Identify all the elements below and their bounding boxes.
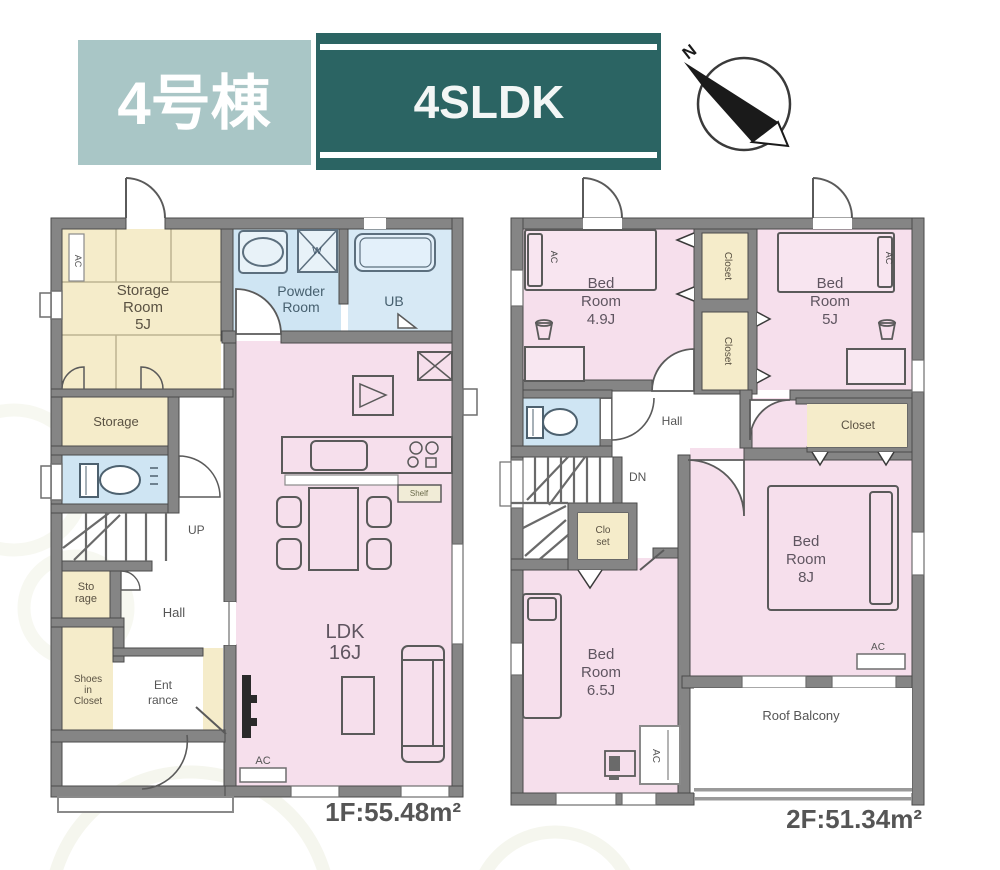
svg-text:Shelf: Shelf <box>410 489 429 498</box>
svg-text:rance: rance <box>148 693 178 707</box>
svg-text:AC: AC <box>650 749 661 763</box>
svg-text:Sto: Sto <box>78 581 95 593</box>
svg-text:AC: AC <box>73 255 83 268</box>
svg-text:AC: AC <box>884 252 894 265</box>
svg-text:6.5J: 6.5J <box>587 682 615 699</box>
svg-text:AC: AC <box>871 642 885 653</box>
svg-text:rage: rage <box>75 593 97 605</box>
svg-text:Room: Room <box>123 299 163 316</box>
svg-text:Room: Room <box>581 664 621 681</box>
svg-text:Closet: Closet <box>722 337 733 366</box>
svg-text:Room: Room <box>581 293 621 310</box>
svg-text:2F:51.34m²: 2F:51.34m² <box>786 804 922 834</box>
svg-text:Storage: Storage <box>117 282 170 299</box>
svg-text:8J: 8J <box>798 569 814 586</box>
svg-text:Closet: Closet <box>722 252 733 281</box>
svg-text:1F:55.48m²: 1F:55.48m² <box>325 797 461 827</box>
svg-text:in: in <box>84 685 92 696</box>
svg-text:Hall: Hall <box>662 414 683 428</box>
svg-text:LDK: LDK <box>326 621 366 643</box>
svg-text:Roof Balcony: Roof Balcony <box>762 708 840 723</box>
svg-text:5J: 5J <box>822 311 838 328</box>
svg-text:Closet: Closet <box>74 696 103 707</box>
svg-text:Room: Room <box>282 299 319 315</box>
svg-text:AC: AC <box>255 755 270 767</box>
svg-text:UB: UB <box>384 293 403 309</box>
svg-text:5J: 5J <box>135 316 151 333</box>
svg-text:Closet: Closet <box>841 418 876 432</box>
svg-text:Storage: Storage <box>93 414 139 429</box>
svg-text:Powder: Powder <box>277 283 325 299</box>
svg-text:Room: Room <box>786 551 826 568</box>
svg-text:Bed: Bed <box>588 646 615 663</box>
svg-text:Clo: Clo <box>595 525 610 536</box>
svg-text:Shoes: Shoes <box>74 674 102 685</box>
svg-text:Hall: Hall <box>163 605 186 620</box>
svg-text:UP: UP <box>188 523 205 537</box>
svg-text:16J: 16J <box>329 642 361 664</box>
svg-text:Room: Room <box>810 293 850 310</box>
svg-text:4SLDK: 4SLDK <box>414 76 565 128</box>
svg-text:Bed: Bed <box>588 275 615 292</box>
svg-text:4号棟: 4号棟 <box>117 70 271 137</box>
svg-text:W: W <box>312 246 322 257</box>
svg-text:DN: DN <box>629 470 646 484</box>
svg-text:set: set <box>596 537 610 548</box>
svg-text:Bed: Bed <box>793 533 820 550</box>
svg-text:Ent: Ent <box>154 678 173 692</box>
svg-text:4.9J: 4.9J <box>587 311 615 328</box>
svg-text:Bed: Bed <box>817 275 844 292</box>
svg-text:AC: AC <box>549 251 559 264</box>
